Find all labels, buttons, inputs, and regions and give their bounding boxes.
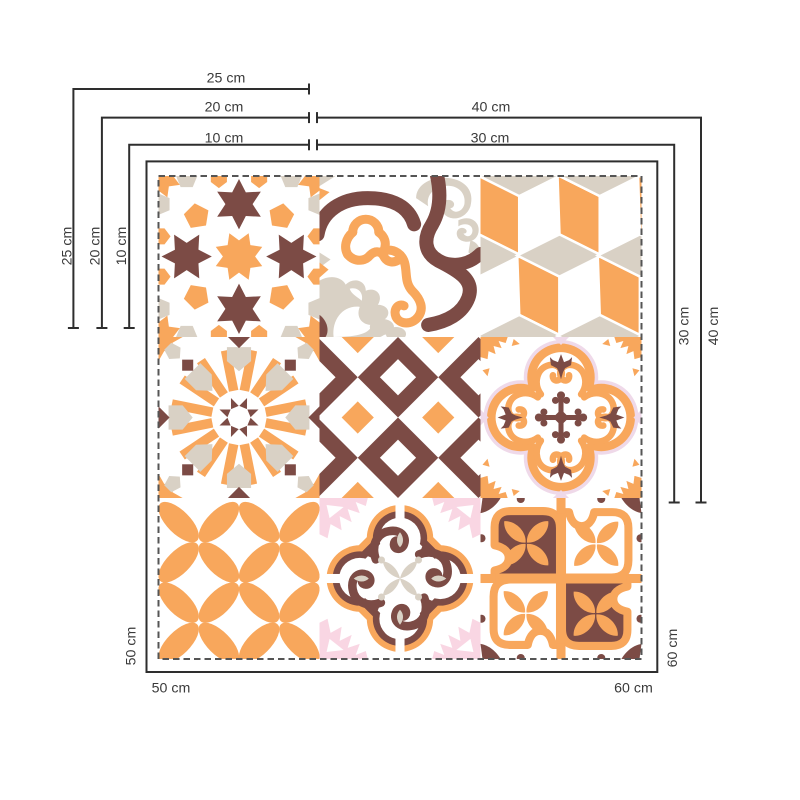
svg-text:60 cm: 60 cm [614, 681, 653, 697]
svg-text:30 cm: 30 cm [471, 131, 510, 147]
svg-text:25 cm: 25 cm [207, 71, 246, 87]
svg-text:10 cm: 10 cm [205, 131, 244, 147]
svg-text:50 cm: 50 cm [152, 681, 191, 697]
svg-text:40 cm: 40 cm [706, 307, 722, 346]
svg-text:20 cm: 20 cm [205, 100, 244, 116]
svg-text:40 cm: 40 cm [472, 100, 511, 116]
svg-text:10 cm: 10 cm [114, 227, 130, 266]
svg-text:50 cm: 50 cm [124, 627, 140, 666]
svg-text:60 cm: 60 cm [665, 629, 681, 668]
svg-text:25 cm: 25 cm [60, 227, 76, 266]
svg-text:20 cm: 20 cm [88, 227, 104, 266]
svg-text:30 cm: 30 cm [677, 307, 693, 346]
